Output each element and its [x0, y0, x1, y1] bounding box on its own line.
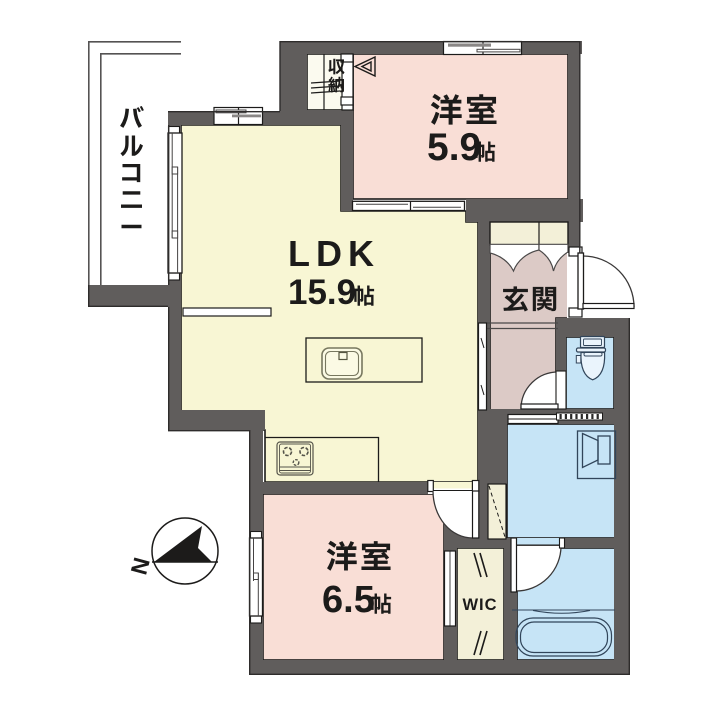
svg-text:6.5: 6.5 — [322, 579, 375, 621]
svg-text:WIC: WIC — [462, 596, 497, 614]
svg-text:15.9: 15.9 — [288, 273, 356, 312]
svg-text:LDK: LDK — [288, 233, 380, 274]
svg-text:5.9: 5.9 — [427, 126, 481, 169]
